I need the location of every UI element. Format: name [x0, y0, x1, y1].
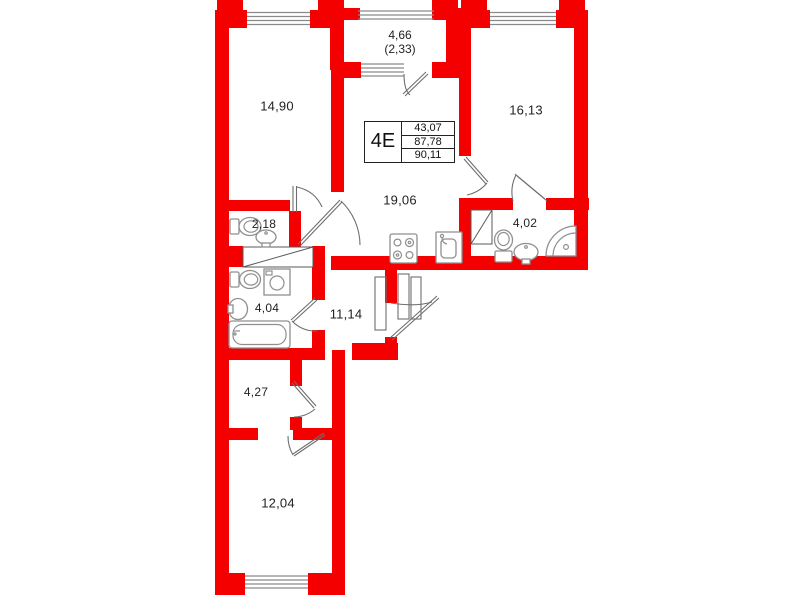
balcony-area-reduced: (2,33): [384, 42, 415, 56]
window-top-right: [490, 13, 556, 25]
room-label-bedroom-top-left: 14,90: [260, 99, 294, 114]
balcony-window: [361, 64, 404, 76]
balcony-area: 4,66: [384, 28, 415, 42]
toilet-icon-bathroom-left: [230, 271, 261, 289]
kitchen-to-room-door-swing: [464, 157, 488, 195]
room-label-bathroom-left: 4,04: [255, 301, 279, 315]
window-top-left: [247, 13, 310, 25]
bathroom-left-door-swing: [291, 298, 317, 331]
unit-area-with-balcony: 90,11: [402, 148, 454, 162]
unit-area-living: 43,07: [402, 122, 454, 135]
sink-icon-wc: [256, 230, 276, 247]
room-label-balcony: 4,66 (2,33): [384, 28, 415, 56]
bathroom-right-door-swing: [512, 174, 547, 201]
bedroom-top-left-door-swing: [293, 186, 322, 212]
unit-type-label: 4E: [365, 122, 402, 162]
toilet-icon-bathroom-right: [495, 230, 513, 262]
room-label-bedroom-bottom: 12,04: [261, 496, 295, 511]
room-label-kitchen-living: 19,06: [383, 193, 417, 208]
room-label-storage: 4,27: [244, 385, 268, 399]
balcony-door-swing: [403, 72, 428, 96]
bathtub-icon: [229, 321, 290, 348]
kitchen-diagonal-door-swing: [298, 200, 360, 246]
room-label-wc: 2,18: [252, 217, 276, 231]
shower-icon: [546, 226, 576, 256]
unit-type-card: 4E 43,07 87,78 90,11: [364, 121, 455, 163]
room-label-hallway: 11,14: [330, 307, 363, 322]
washing-machine-icon: [264, 269, 290, 295]
balcony-parapet: [358, 11, 434, 19]
entrance-door-swing: [375, 274, 439, 340]
floor-plan: [0, 0, 800, 600]
kitchen-sink-icon: [436, 232, 462, 263]
vent-shaft-hatch-left: [243, 247, 313, 267]
window-bottom: [245, 576, 308, 588]
stove-icon: [390, 234, 417, 263]
sink-icon-bathroom-left: [228, 299, 248, 320]
vent-shaft-hatch-right: [471, 210, 492, 244]
unit-area-total: 87,78: [402, 135, 454, 149]
floor-plan-page: 4,66 (2,33) 14,90 16,13 19,06 2,18 4,02 …: [0, 0, 800, 600]
room-label-bathroom-right: 4,02: [513, 216, 537, 230]
room-label-bedroom-top-right: 16,13: [509, 103, 543, 118]
storage-door-swing: [292, 381, 316, 417]
